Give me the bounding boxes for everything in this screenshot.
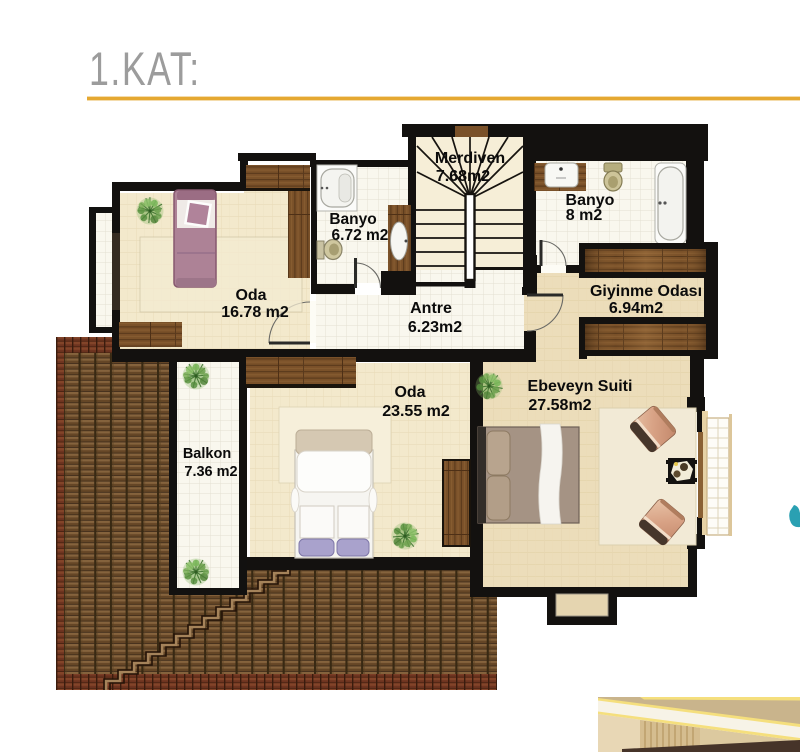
svg-text:Antre: Antre [410, 300, 452, 317]
svg-text:6.72 m2: 6.72 m2 [332, 227, 389, 244]
svg-text:7.68m2: 7.68m2 [436, 168, 490, 185]
svg-text:16.78 m2: 16.78 m2 [221, 304, 289, 321]
svg-text:Banyo: Banyo [329, 211, 376, 228]
svg-text:Merdiven: Merdiven [435, 150, 505, 167]
svg-text:Giyinme Odası: Giyinme Odası [590, 283, 702, 300]
svg-text:6.23m2: 6.23m2 [408, 319, 462, 336]
svg-text:1.KAT:: 1.KAT: [89, 42, 201, 95]
svg-text:Balkon: Balkon [183, 446, 231, 462]
svg-text:27.58m2: 27.58m2 [528, 397, 591, 414]
svg-text:8 m2: 8 m2 [566, 207, 603, 224]
svg-text:7.36 m2: 7.36 m2 [184, 464, 237, 480]
svg-text:6.94m2: 6.94m2 [609, 300, 663, 317]
svg-text:Oda: Oda [235, 287, 266, 304]
svg-text:23.55 m2: 23.55 m2 [382, 403, 450, 420]
svg-text:Ebeveyn Suiti: Ebeveyn Suiti [528, 378, 633, 395]
svg-text:Oda: Oda [394, 384, 425, 401]
